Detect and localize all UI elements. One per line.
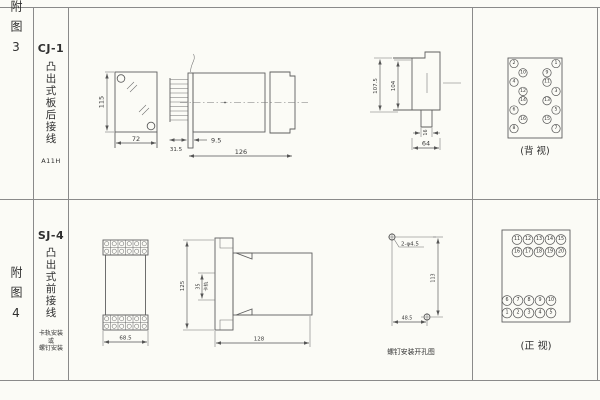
svg-text:9: 9 [546, 69, 549, 75]
dim-31-5: 31.5 [170, 147, 183, 153]
svg-text:16: 16 [514, 249, 520, 255]
fig4-index-cell: 附图4 [0, 266, 33, 328]
dim-125: 125 [180, 280, 186, 291]
fig4-title: SJ-4 [33, 229, 69, 242]
svg-text:13: 13 [544, 97, 550, 103]
fig4-index-label: 附图4 [8, 266, 25, 328]
svg-text:15: 15 [544, 116, 550, 122]
mount-note-line1: 卡轨安装 [33, 330, 69, 338]
fig4-front-view: 68.5 [103, 240, 148, 346]
svg-text:2: 2 [513, 60, 516, 66]
dim-104: 104 [391, 80, 397, 91]
dim-115: 115 [98, 96, 106, 108]
svg-text:18: 18 [536, 249, 542, 255]
svg-text:10: 10 [548, 297, 554, 303]
fig3-side-view: 31.5 9.5 126 [170, 54, 309, 156]
drill-caption: 螺钉安装开孔图 [387, 347, 435, 356]
svg-text:14: 14 [520, 97, 526, 103]
svg-text:12: 12 [520, 88, 526, 94]
rear-view-caption: (背 视) [520, 145, 549, 157]
svg-text:8: 8 [513, 125, 516, 131]
fig3-rear-view: 2 10 4 12 14 6 16 8 1 9 11 3 13 5 15 7 (… [508, 58, 562, 157]
svg-text:5: 5 [555, 107, 558, 113]
svg-text:13: 13 [536, 236, 542, 242]
fig3-title: CJ-1 [33, 42, 69, 55]
mount-note-line3: 螺钉安装 [33, 345, 69, 353]
dim-48-5: 48.5 [402, 316, 413, 322]
dim-128: 128 [254, 337, 265, 343]
svg-text:3: 3 [555, 88, 558, 94]
svg-text:11: 11 [514, 236, 520, 242]
fig4-mount-note: 卡轨安装 或 螺钉安装 [33, 330, 69, 353]
fig4-side-view: 125 35 卡轨 128 [180, 238, 312, 347]
hole-label: 2-φ4.5 [401, 242, 419, 248]
fig4-front-terminal-view: 11 12 13 14 15 16 17 18 19 20 6 7 8 9 10… [502, 230, 570, 352]
svg-text:15: 15 [558, 236, 564, 242]
line-art: 115 72 31.5 9.5 [0, 0, 600, 400]
rail-label: 卡轨 [203, 282, 210, 292]
fig3-panel-view: 107.5 104 16 64 [370, 52, 461, 150]
svg-text:10: 10 [520, 69, 526, 75]
svg-text:9: 9 [538, 297, 541, 303]
svg-text:7: 7 [555, 125, 558, 131]
svg-text:1: 1 [555, 60, 558, 66]
svg-text:5: 5 [549, 310, 552, 316]
fig3-code: A11H [33, 157, 69, 165]
dim-107-5: 107.5 [373, 78, 379, 94]
dim-16: 16 [423, 129, 429, 135]
dim-68-5: 68.5 [119, 336, 132, 342]
fig3-subtitle-label: 凸出式板后接线 [44, 61, 59, 145]
fig3-front-view: 115 72 [98, 72, 158, 148]
dim-64: 64 [422, 140, 430, 148]
fig4-subtitle: 凸出式前接线 [33, 247, 69, 319]
front-view-caption: (正 视) [521, 339, 552, 352]
fig4-subtitle-label: 凸出式前接线 [44, 247, 59, 319]
drawing-sheet: 115 72 31.5 9.5 [0, 0, 600, 400]
svg-text:6: 6 [505, 297, 508, 303]
svg-text:6: 6 [513, 107, 516, 113]
rear-terminals-right: 1 9 11 3 13 5 15 7 [543, 59, 560, 133]
rear-terminals-left: 2 10 4 12 14 6 16 8 [510, 59, 527, 133]
svg-text:11: 11 [544, 79, 550, 85]
svg-text:4: 4 [513, 79, 516, 85]
svg-text:3: 3 [527, 310, 530, 316]
fig4-drill-view: 2-φ4.5 113 48.5 螺钉安装开孔图 [387, 233, 443, 356]
svg-text:17: 17 [525, 249, 531, 255]
mount-note-line2: 或 [33, 338, 69, 346]
fig3-index-label: 附图3 [8, 0, 25, 62]
svg-text:8: 8 [527, 297, 530, 303]
front-terminals: 11 12 13 14 15 16 17 18 19 20 6 7 8 9 10… [502, 235, 566, 318]
svg-text:2: 2 [516, 310, 519, 316]
dim-126: 126 [235, 148, 247, 156]
fig3-title-label: CJ-1 [38, 42, 64, 55]
dim-9-5: 9.5 [211, 137, 221, 145]
svg-text:19: 19 [547, 249, 553, 255]
fig3-code-label: A11H [41, 157, 61, 165]
svg-text:1: 1 [505, 310, 508, 316]
dim-35: 35 [196, 283, 202, 289]
fig3-index-cell: 附图3 [0, 0, 33, 62]
svg-text:16: 16 [520, 116, 526, 122]
fig4-title-label: SJ-4 [38, 229, 64, 242]
svg-text:4: 4 [538, 310, 541, 316]
fig3-subtitle: 凸出式板后接线 [33, 61, 69, 145]
svg-text:7: 7 [516, 297, 519, 303]
svg-text:14: 14 [547, 236, 553, 242]
dim-72: 72 [132, 135, 140, 143]
svg-text:12: 12 [525, 236, 531, 242]
svg-text:20: 20 [558, 249, 564, 255]
dim-113: 113 [431, 273, 437, 282]
